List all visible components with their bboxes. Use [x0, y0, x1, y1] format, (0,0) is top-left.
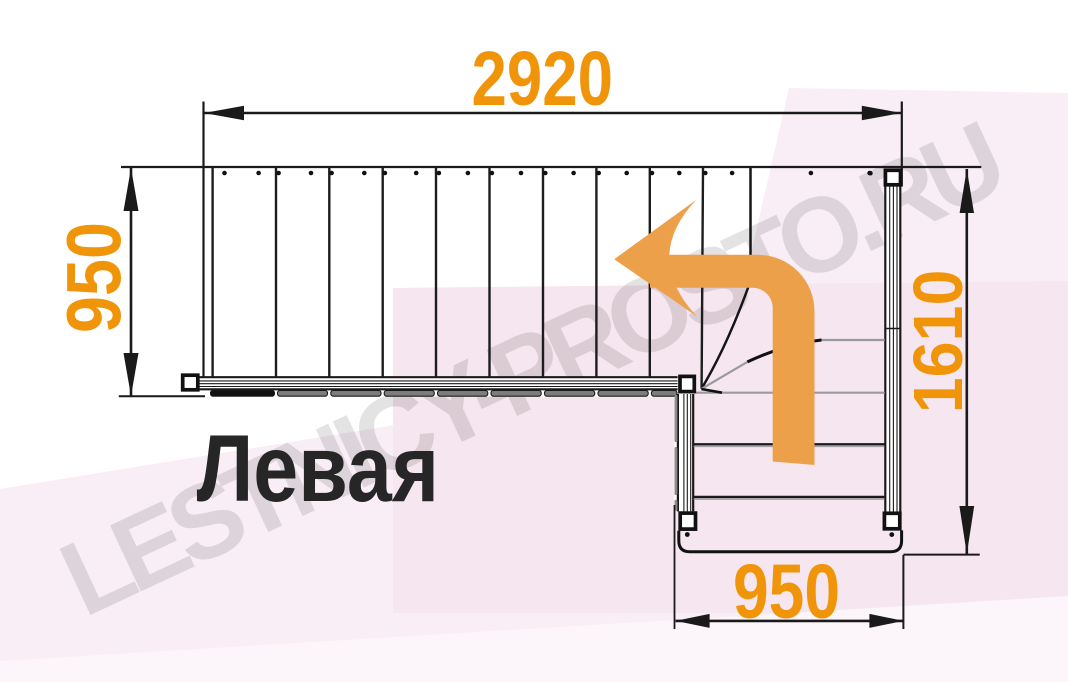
svg-text:Левая: Левая — [197, 416, 439, 522]
svg-text:1610: 1610 — [899, 270, 977, 414]
svg-text:950: 950 — [52, 222, 138, 333]
svg-text:950: 950 — [733, 549, 840, 635]
svg-text:2920: 2920 — [472, 36, 614, 122]
